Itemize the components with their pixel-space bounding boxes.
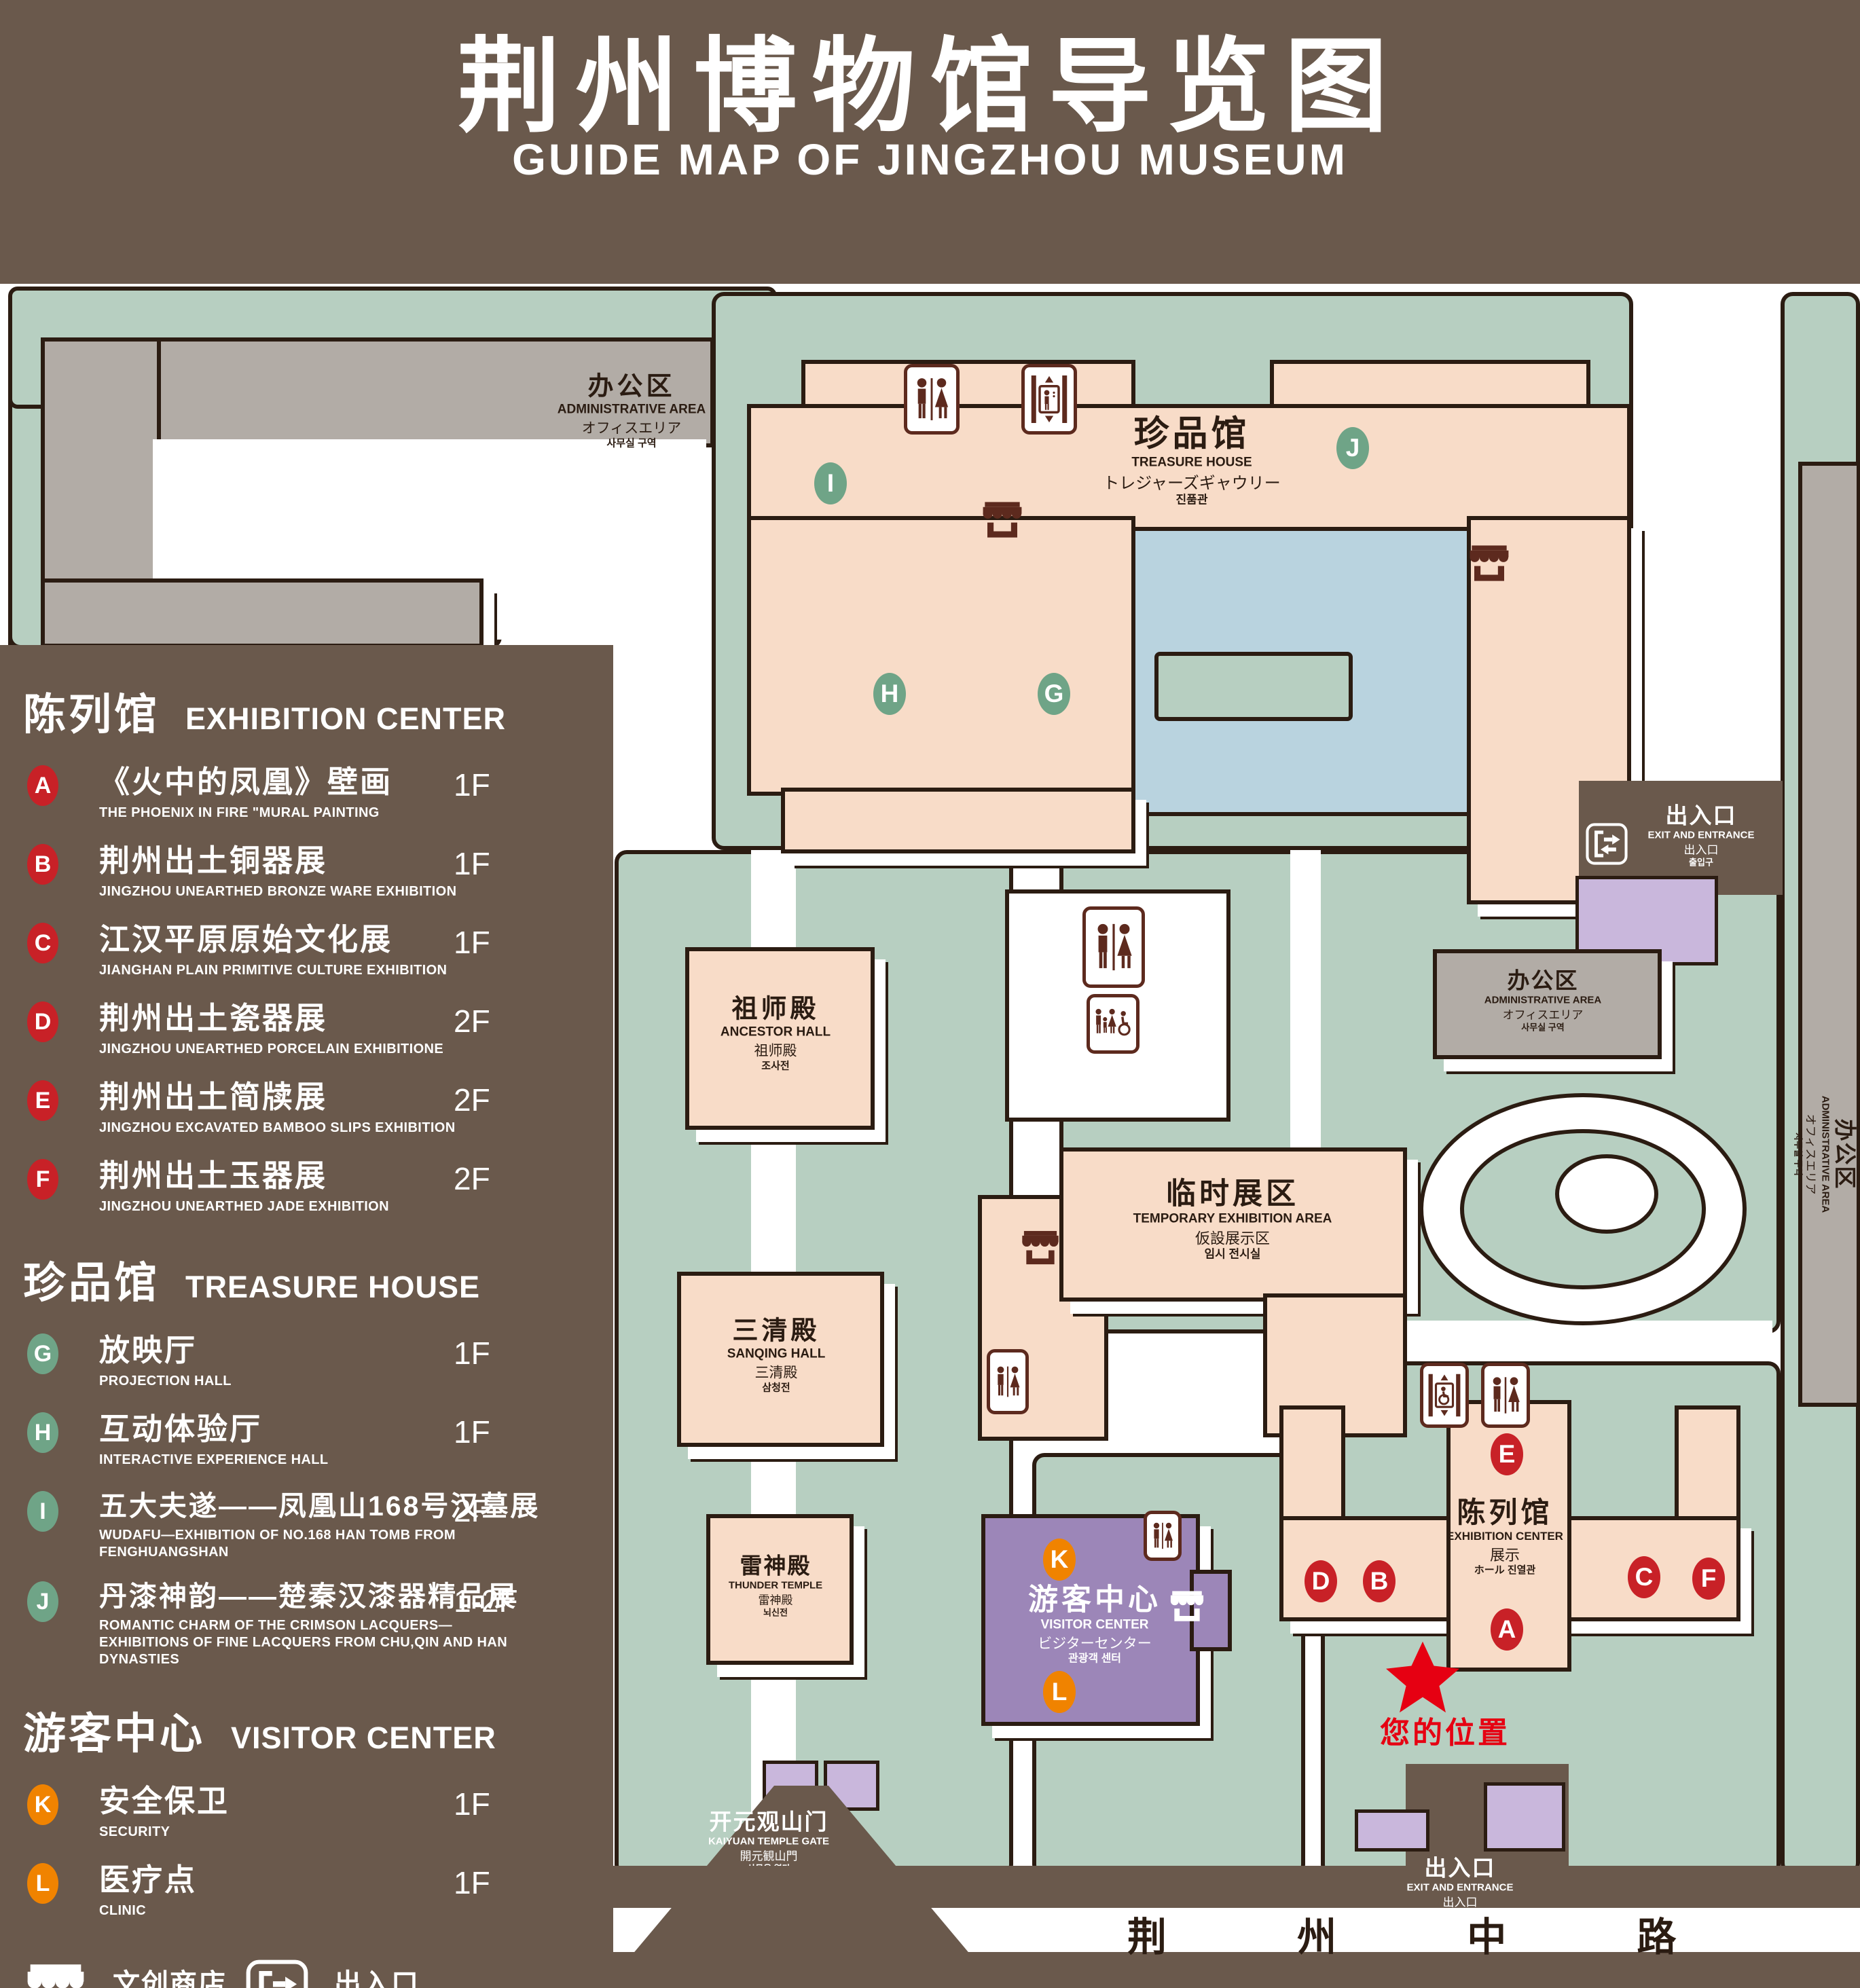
restroom-icon (1082, 906, 1145, 988)
exit-icon (240, 1957, 314, 1988)
marker-e: E (1491, 1433, 1523, 1475)
east-office-strip (1798, 462, 1860, 1407)
guide-map-poster: 荆州博物馆导览图 GUIDE MAP OF JINGZHOU MUSEUM (0, 0, 1860, 1988)
marker-c: C (1628, 1556, 1660, 1598)
floor-label: 2F (454, 1160, 490, 1197)
treasure-house-west-tab (781, 788, 1135, 853)
page-title: 荆州博物馆导览图 (0, 3, 1860, 152)
marker-f: F (1692, 1558, 1725, 1600)
badge-g: G (27, 1333, 58, 1374)
east-office-strip-label: 办公区 ADMINISTRATIVE AREA オフィスエリア 사무실 구역 (1793, 1096, 1858, 1213)
badge-i: I (27, 1491, 58, 1532)
exhibition-center-label: 陈列馆 EXHIBITION CENTER 展示 ホール 진열관 (1446, 1496, 1563, 1576)
exhibition-center-right-arm (1675, 1405, 1740, 1524)
marker-a: A (1491, 1608, 1523, 1651)
legend: 陈列馆EXHIBITION CENTER A 《火中的凤凰》壁画 THE PHO… (19, 680, 611, 1988)
legend-item-f: F 荆州出土玉器展 JINGZHOU UNEARTHED JADE EXHIBI… (19, 1159, 611, 1217)
restroom-icon (904, 364, 960, 435)
floor-label: 1F (454, 1335, 490, 1372)
marker-h: H (873, 673, 906, 715)
floor-label: 2F (454, 1003, 490, 1039)
legend-item-j: J 丹漆神韵——楚秦汉漆器精品展 ROMANTIC CHARM OF THE C… (19, 1581, 611, 1668)
sanqing-hall-label: 三清殿 SANQING HALL 三清殿 삼청전 (727, 1317, 826, 1395)
kaiyuan-gate-label: 开元观山门 KAIYUAN TEMPLE GATE 開元観山門 산문을 열다 (708, 1809, 829, 1874)
marker-b: B (1363, 1560, 1396, 1602)
page-subtitle: GUIDE MAP OF JINGZHOU MUSEUM (0, 134, 1860, 185)
legend-symbols: 文创商店STORE 出入口EXIT AND ENTRANCE 卫生间RESTRO… (19, 1957, 611, 1988)
visitor-center-label: 游客中心 VISITOR CENTER ビジターセンター 관광객 센터 (1028, 1583, 1161, 1666)
badge-b: B (27, 844, 58, 885)
marker-k: K (1043, 1539, 1076, 1581)
badge-h: H (27, 1412, 58, 1453)
floor-label: 1F (454, 1786, 490, 1822)
store-icon (1168, 1589, 1206, 1623)
badge-j: J (27, 1581, 58, 1622)
floor-label: 2F (454, 1492, 490, 1529)
legend-item-k: K 安全保卫 SECURITY 1F (19, 1784, 611, 1843)
floor-label: 1F (454, 767, 490, 803)
restroom-icon (987, 1349, 1029, 1414)
legend-item-d: D 荆州出土瓷器展 JINGZHOU UNEARTHED PORCELAIN E… (19, 1001, 611, 1060)
legend-exit: 出入口EXIT AND ENTRANCE (240, 1957, 611, 1988)
lake-island (1154, 652, 1353, 721)
store-icon (1467, 543, 1512, 584)
exit-icon (1586, 823, 1628, 865)
legend-item-a: A 《火中的凤凰》壁画 THE PHOENIX IN FIRE "MURAL P… (19, 765, 611, 824)
legend-section-visitor: 游客中心VISITOR CENTER (23, 1699, 611, 1761)
marker-d: D (1305, 1560, 1337, 1602)
south-gate-block-west (1355, 1809, 1429, 1852)
floor-label: 1-2F (454, 1583, 518, 1619)
legend-store: 文创商店STORE (19, 1957, 236, 1988)
floor-label: 2F (454, 1082, 490, 1118)
legend-item-i: I 五大夫遂——凤凰山168号汉墓展 WUDAFU—EXHIBITION OF … (19, 1491, 611, 1561)
floor-label: 1F (454, 845, 490, 882)
badge-d: D (27, 1001, 58, 1042)
floor-label: 1F (454, 924, 490, 961)
restroom-icon (1144, 1511, 1182, 1561)
treasure-house-label: 珍品馆 TREASURE HOUSE トレジャーズギャウリー 진품관 (1103, 413, 1281, 507)
store-icon (19, 1957, 92, 1988)
north-exit-label: 出入口 EXIT AND ENTRANCE 出入口 출입구 (1648, 803, 1755, 868)
store-icon (980, 500, 1025, 540)
legend-item-l: L 医疗点 CLINIC 1F (19, 1863, 611, 1921)
accessible-elevator-icon (1420, 1363, 1469, 1428)
your-location-label: 您的位置 (1380, 1708, 1510, 1752)
badge-e: E (27, 1080, 58, 1121)
legend-item-e: E 荆州出土简牍展 JINGZHOU EXCAVATED BAMBOO SLIP… (19, 1080, 611, 1139)
marker-i: I (814, 462, 847, 504)
floor-label: 1F (454, 1864, 490, 1901)
office-building-bottom-bar (41, 578, 484, 648)
badge-a: A (27, 765, 58, 806)
badge-k: K (27, 1784, 58, 1825)
east-office-label: 办公区 ADMINISTRATIVE AREA オフィスエリア 사무실 구역 (1484, 968, 1602, 1033)
your-location-star-icon (1385, 1640, 1461, 1714)
marker-g: G (1038, 673, 1070, 715)
store-icon (1019, 1229, 1061, 1267)
legend-section-exhibition: 陈列馆EXHIBITION CENTER (23, 680, 611, 742)
office-label: 办公区 ADMINISTRATIVE AREA オフィスエリア 사무실 구역 (558, 372, 706, 450)
sidewalk (524, 1866, 1860, 1908)
exhibition-center-left-arm (1279, 1405, 1345, 1524)
legend-item-c: C 江汉平原原始文化展 JIANGHAN PLAIN PRIMITIVE CUL… (19, 923, 611, 981)
badge-f: F (27, 1159, 58, 1200)
road-label: 荆 州 中 路 (1127, 1905, 1736, 1962)
floor-label: 1F (454, 1414, 490, 1450)
garden-loop-pond (1555, 1154, 1658, 1234)
south-gate-block-east (1484, 1782, 1565, 1852)
temporary-exhibition-label: 临时展区 TEMPORARY EXHIBITION AREA 仮設展示区 임시 … (1133, 1176, 1332, 1261)
ancestor-hall-label: 祖师殿 ANCESTOR HALL 祖师殿 조사전 (721, 995, 831, 1073)
family-restroom-icon (1087, 994, 1139, 1054)
legend-item-b: B 荆州出土铜器展 JINGZHOU UNEARTHED BRONZE WARE… (19, 844, 611, 902)
badge-l: L (27, 1863, 58, 1904)
restroom-icon (1481, 1363, 1530, 1428)
treasure-house-west-lobe (747, 516, 1135, 796)
elevator-icon (1021, 364, 1077, 435)
legend-section-treasure: 珍品馆TREASURE HOUSE (23, 1249, 611, 1310)
thunder-temple-label: 雷神殿 THUNDER TEMPLE 雷神殿 뇌신전 (729, 1553, 822, 1618)
badge-c: C (27, 923, 58, 963)
marker-j: J (1336, 427, 1369, 469)
marker-l: L (1043, 1671, 1076, 1713)
legend-item-h: H 互动体验厅 INTERACTIVE EXPERIENCE HALL 1F (19, 1412, 611, 1471)
legend-item-g: G 放映厅 PROJECTION HALL 1F (19, 1333, 611, 1392)
